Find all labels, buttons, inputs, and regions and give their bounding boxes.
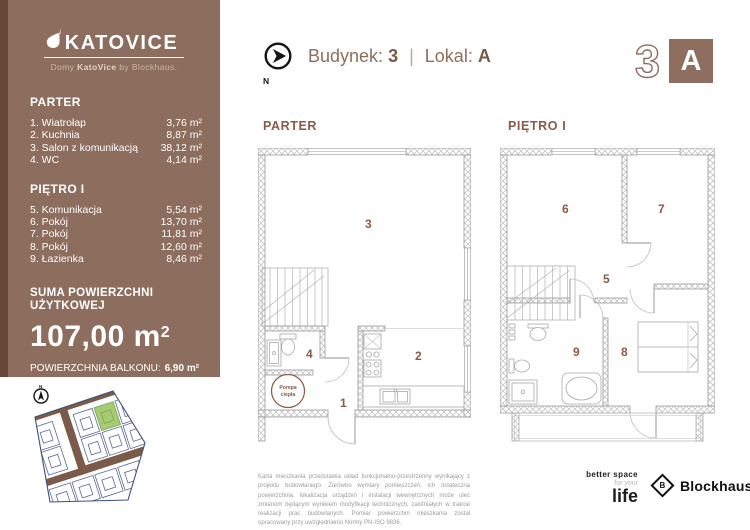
room-row: 8. Pokój 12,60 m² (30, 241, 202, 253)
wc-door-arc (325, 358, 349, 382)
room-row: 3. Salon z komunikacją 38,12 m² (30, 142, 202, 154)
balcony-door-arc (630, 413, 656, 438)
unit-mark-number-outline: 3 (633, 36, 665, 86)
bed-icon (638, 322, 698, 372)
room-label: 5. Komunikacja (30, 204, 102, 216)
unit-mark-square: A (669, 39, 713, 83)
room-row: 9. Łazienka 8,46 m² (30, 253, 202, 265)
building-value: 3 (388, 46, 398, 66)
pietro-floor-plan: 6 7 5 9 8 (500, 148, 715, 460)
site-roads (28, 383, 178, 492)
sidebar-accent-strip (0, 0, 8, 377)
room-label-1: 1 (340, 396, 347, 410)
room-label: 1. Wiatrołap (30, 117, 86, 129)
location-pin-icon (46, 28, 61, 53)
room-label-6: 6 (562, 202, 569, 216)
room-label: 8. Pokój (30, 241, 68, 253)
header-separator: | (398, 46, 425, 66)
blockhaus-mark: B (660, 482, 666, 490)
room-row: 2. Kuchnia 8,87 m² (30, 129, 202, 141)
heat-pump: Pompa ciepła (272, 375, 305, 408)
room-area: 3,76 m² (166, 117, 202, 129)
site-map-content (28, 383, 178, 519)
balcony-value: 6,90 m² (165, 363, 199, 374)
room-area: 4,14 m² (166, 154, 202, 166)
compass-n-label: N (263, 76, 269, 86)
blockhaus-logo: B Blockhaus. (650, 477, 750, 494)
room8-door-arc (630, 289, 654, 313)
room-area: 38,12 m² (161, 142, 202, 154)
section-heading-pietro: PIĘTRO I (30, 182, 202, 196)
section-heading-parter: PARTER (30, 95, 202, 109)
room-label: 4. WC (30, 154, 59, 166)
room-label: 9. Łazienka (30, 253, 84, 265)
total-area-sup: 2 (161, 324, 170, 341)
room-area: 12,60 m² (161, 241, 202, 253)
unit-value: A (478, 46, 491, 66)
entrance-door-arc (328, 417, 355, 444)
room-area: 13,70 m² (161, 216, 202, 228)
heat-pump-label-1: Pompa (279, 385, 296, 391)
summary-heading: SUMA POWIERZCHNI UŻYTKOWEJ (30, 287, 202, 313)
site-plan: N (28, 383, 178, 530)
brand-subtitle: Domy KatoVice by Blockhaus. (8, 62, 220, 72)
balcony (512, 413, 703, 441)
parter-windows (308, 149, 471, 393)
room-row: 7. Pokój 11,81 m² (30, 228, 202, 240)
room-area: 5,54 m² (166, 204, 202, 216)
wc-fixtures (267, 334, 296, 366)
site-compass-icon: N (34, 384, 48, 403)
brand-subtitle-suffix: by Blockhaus. (117, 62, 178, 72)
washbasin-icon (530, 328, 546, 341)
room-label-5: 5 (603, 272, 610, 286)
site-compass-n-label: N (39, 384, 42, 389)
building-unit-header: Budynek: 3|Lokal: A (308, 46, 491, 67)
unit-mark: 3 A (633, 36, 713, 86)
blockhaus-name: Blockhaus. (680, 478, 750, 494)
room-area: 8,46 m² (166, 253, 202, 265)
brand-title: KATOVICE (65, 33, 179, 53)
room-label: 2. Kuchnia (30, 129, 80, 141)
brand-logo: KATOVICE Domy KatoVice by Blockhaus. (8, 28, 220, 72)
total-area-number: 107,00 m (30, 320, 161, 353)
toilet-tank-icon (280, 334, 296, 339)
parter-floor-plan: Pompa ciepła 3 4 1 2 (258, 148, 471, 446)
parter-plan-title: PARTER (263, 119, 317, 133)
balcony-row: POWIERZCHNIA BALKONU:6,90 m² (30, 362, 202, 376)
room-label: 3. Salon z komunikacją (30, 142, 138, 154)
toilet-icon (515, 360, 530, 372)
room-row: 1. Wiatrołap 3,76 m² (30, 117, 202, 129)
unit-mark-letter: A (681, 47, 702, 76)
kitchen-counter (363, 386, 464, 407)
toilet-tank-icon (509, 359, 514, 373)
unit-label: Lokal: (425, 46, 473, 66)
room-label-8: 8 (621, 345, 628, 359)
pietro-plan-title: PIĘTRO I (508, 119, 566, 133)
tagline-line1: better space (556, 470, 638, 479)
room-label-9: 9 (573, 345, 580, 359)
room6-door-arc (570, 279, 594, 303)
building-label: Budynek: (308, 46, 383, 66)
staircase-up (507, 266, 575, 320)
toilet-icon (282, 339, 295, 355)
floor-plan-card: KATOVICE Domy KatoVice by Blockhaus. PAR… (0, 0, 750, 530)
room-label-7: 7 (658, 202, 665, 216)
blockhaus-diamond-icon: B (650, 473, 674, 497)
room-row: 6. Pokój 13,70 m² (30, 216, 202, 228)
brand-subtitle-brand: KatoVice (77, 62, 116, 72)
room7-door-arc (627, 243, 651, 267)
staircase (262, 268, 328, 326)
legal-disclaimer: Karta mieszkania przedstawia układ funkc… (258, 473, 470, 529)
tagline-line3: life (556, 488, 638, 504)
room-label-3: 3 (365, 217, 372, 231)
room-row: 4. WC 4,14 m² (30, 154, 202, 166)
heat-pump-label-2: ciepła (281, 392, 296, 398)
balcony-label: POWIERZCHNIA BALKONU: (30, 363, 161, 374)
tagline: better space for your life (556, 470, 638, 504)
total-area-value: 107,00 m2 (30, 316, 202, 353)
room-label: 7. Pokój (30, 228, 68, 240)
room-area: 11,81 m² (161, 228, 202, 240)
bathroom-fixtures (509, 324, 601, 404)
unit-mark-number: 3 (635, 36, 660, 86)
room-label-4: 4 (306, 347, 313, 361)
sidebar: KATOVICE Domy KatoVice by Blockhaus. PAR… (0, 0, 220, 377)
room-area: 8,87 m² (166, 129, 202, 141)
room-row: 5. Komunikacja 5,54 m² (30, 204, 202, 216)
kitchen-fixtures (363, 334, 464, 407)
site-plots (29, 388, 178, 512)
sidebar-content: PARTER 1. Wiatrołap 3,76 m² 2. Kuchnia 8… (30, 95, 202, 389)
room-label-2: 2 (415, 349, 422, 363)
room-label: 6. Pokój (30, 216, 68, 228)
north-compass-icon: N (262, 40, 298, 93)
brand-subtitle-prefix: Domy (51, 62, 78, 72)
